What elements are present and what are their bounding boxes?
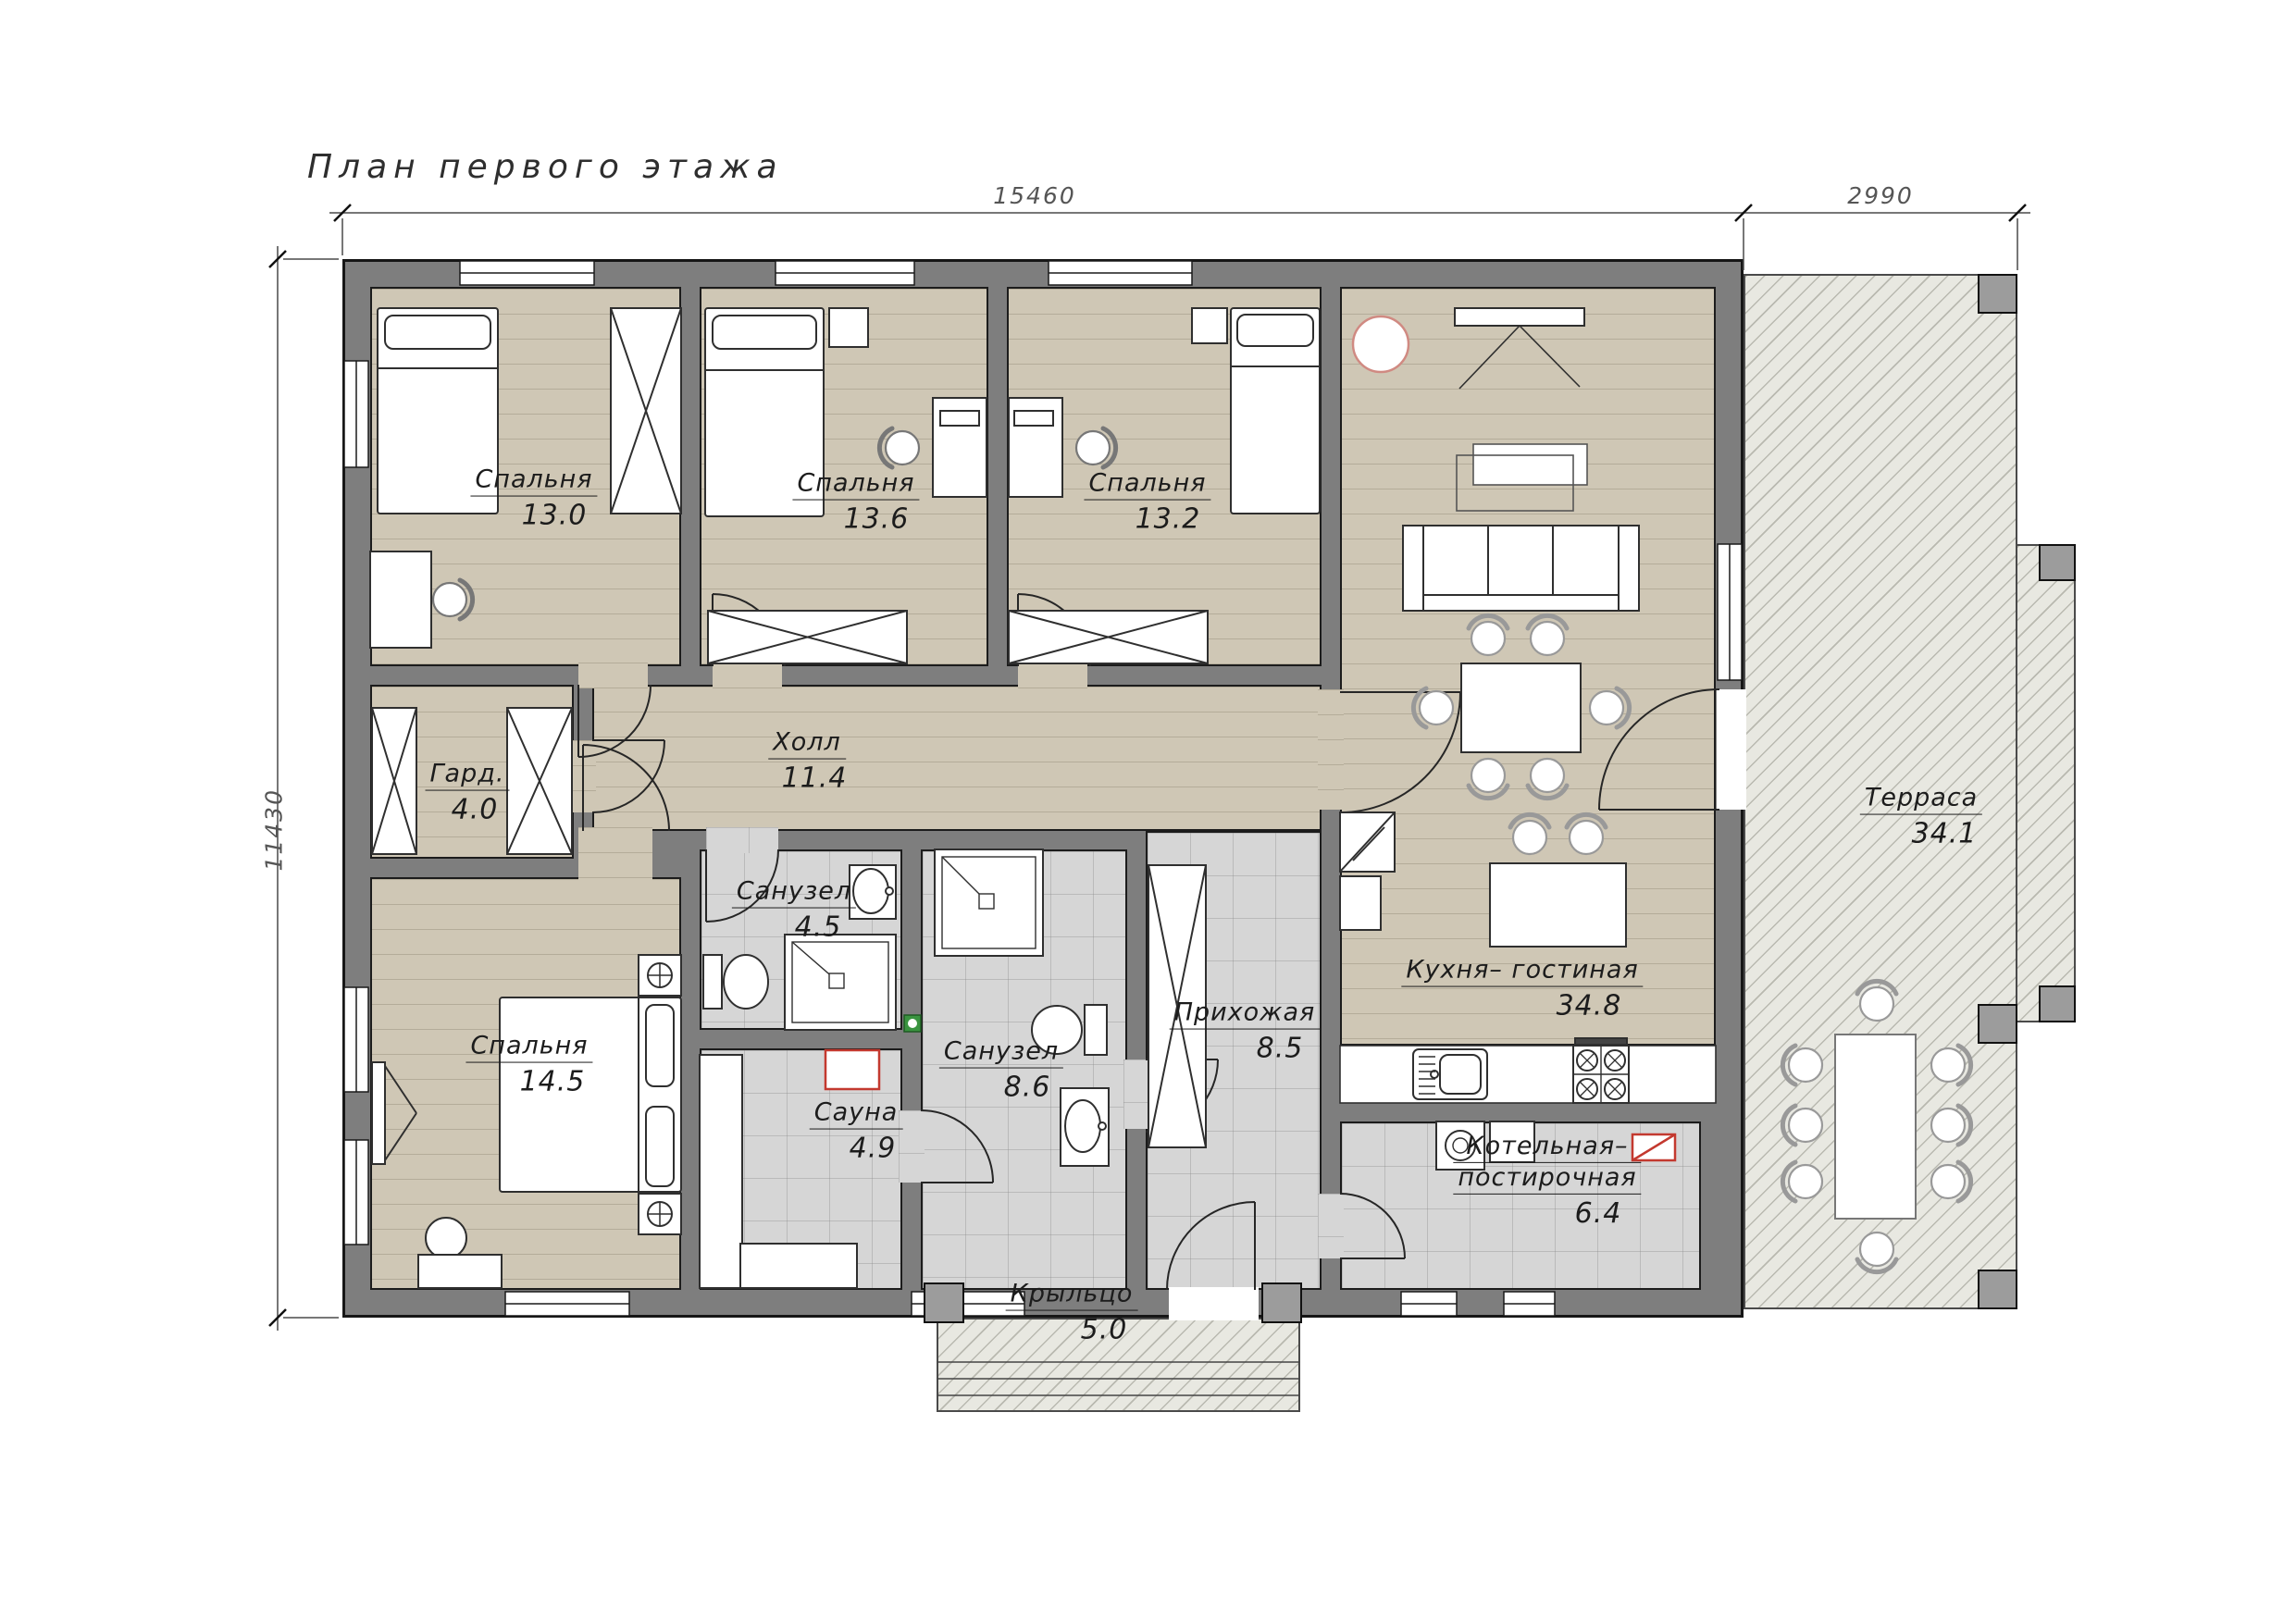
terrace-bay-pillar: [2039, 544, 2076, 581]
pouf: [426, 1218, 466, 1258]
page-title: План первого этажа: [307, 148, 784, 186]
sauna-bench: [740, 1244, 857, 1288]
terrace-pillar: [1978, 274, 2017, 314]
toilet: [1085, 1005, 1107, 1055]
room-label-bedroom-1: Спальня 13.0: [470, 465, 597, 532]
porch-pillar: [1261, 1282, 1302, 1323]
dimension-top-main: 15460: [993, 182, 1076, 209]
pillow: [713, 316, 816, 349]
toilet: [703, 955, 722, 1009]
terrace-chair: [1931, 1162, 1971, 1201]
room-label-bedroom-4: Спальня 14.5: [465, 1032, 592, 1098]
room-label-entry-hall: Прихожая 8.5: [1170, 998, 1321, 1065]
terrace-chair: [1782, 1162, 1822, 1201]
nightstand: [1192, 308, 1227, 343]
nightstand: [829, 308, 868, 347]
lamp: [648, 1202, 672, 1226]
dining-chair: [1469, 615, 1508, 655]
kitchen-island: [1490, 863, 1626, 947]
terrace-pillar: [1978, 1004, 2017, 1044]
cabinet: [1340, 876, 1381, 930]
room-label-bathroom-small: Санузел 4.5: [732, 877, 856, 944]
room-label-wardrobe: Гард. 4.0: [426, 760, 510, 826]
lamp: [648, 963, 672, 987]
bar-stool: [1567, 814, 1606, 854]
dining-chair: [1413, 688, 1453, 727]
room-label-bedroom-3: Спальня 13.2: [1084, 469, 1210, 536]
room-label-terrace: Терраса 34.1: [1860, 784, 1982, 850]
floor-plan-canvas: План первого этажа 15460 2990 11430: [0, 0, 2296, 1623]
pillow: [385, 316, 490, 349]
room-label-sauna: Сауна 4.9: [810, 1098, 903, 1165]
coffee-table: [1473, 444, 1587, 485]
pillow: [646, 1005, 674, 1086]
terrace-chair: [1857, 1233, 1896, 1272]
dining-chair: [1528, 759, 1567, 799]
room-label-porch: Крыльцо 5.0: [1006, 1280, 1138, 1346]
dining-chair: [1469, 759, 1508, 799]
room-label-boiler-laundry: Котельная– постирочная 6.4: [1453, 1132, 1641, 1230]
sauna-heater: [825, 1050, 879, 1089]
tv: [1455, 308, 1584, 326]
desk-chair: [1076, 428, 1116, 467]
sofa: [1403, 526, 1639, 611]
terrace-table: [1835, 1035, 1916, 1219]
porch-pillar: [924, 1282, 964, 1323]
terrace-chair: [1931, 1106, 1971, 1145]
chimney: [1353, 316, 1409, 372]
room-label-kitchen-living: Кухня– гостиная 34.8: [1401, 956, 1643, 1022]
terrace-chair: [1782, 1106, 1822, 1145]
room-label-hall: Холл 11.4: [768, 728, 846, 795]
kitchen-counter: [1340, 1046, 1716, 1103]
pillow: [646, 1107, 674, 1186]
dimension-left-height: 11430: [261, 788, 288, 872]
terrace-pillar: [1978, 1270, 2017, 1309]
terrace-chair: [1782, 1046, 1822, 1084]
terrace-chair: [1857, 981, 1896, 1021]
room-label-bedroom-2: Спальня 13.6: [792, 469, 919, 536]
terrace-chair: [1931, 1046, 1971, 1084]
dimension-top-terrace: 2990: [1847, 182, 1914, 209]
room-label-bathroom-big: Санузел 8.6: [939, 1037, 1063, 1104]
dining-table: [1461, 663, 1581, 752]
terrace-furniture: [1835, 1035, 1916, 1219]
porch-steps: [937, 1362, 1300, 1395]
desk-chair: [879, 428, 919, 467]
tv-unit: [372, 1062, 385, 1164]
terrace-bay-pillar: [2039, 985, 2076, 1022]
pillow: [1237, 315, 1313, 346]
desk-chair: [433, 580, 473, 619]
sauna-bench: [700, 1055, 742, 1288]
desk: [370, 551, 431, 648]
dresser: [418, 1255, 502, 1288]
dining-chair: [1528, 615, 1567, 655]
bar-stool: [1510, 814, 1549, 854]
dining-chair: [1590, 688, 1630, 727]
